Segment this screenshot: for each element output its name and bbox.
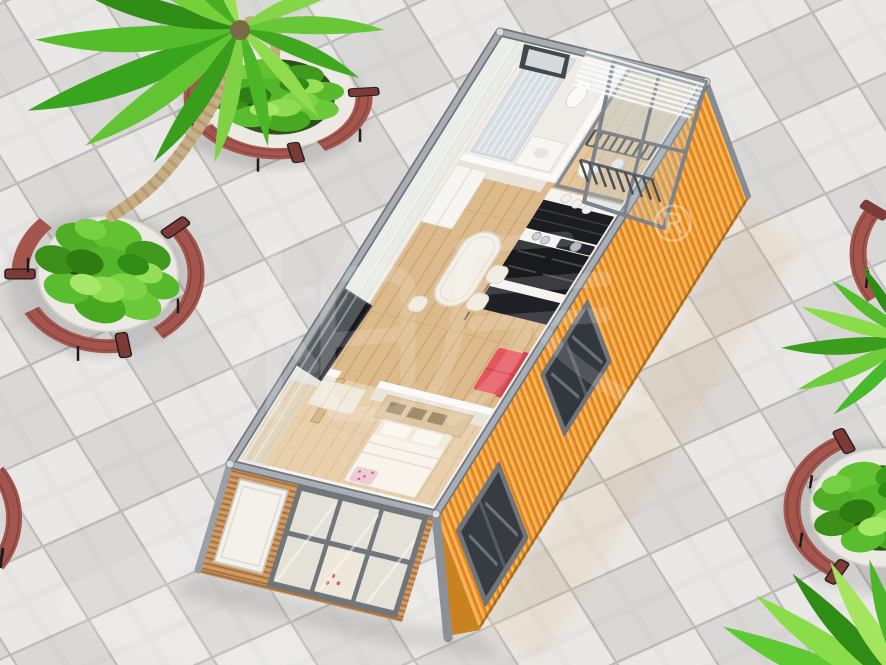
scene-render: ® bbox=[0, 0, 886, 665]
corner-cap bbox=[496, 28, 504, 36]
render-canvas: 柏辰 bbox=[0, 0, 886, 665]
corner-cap bbox=[226, 460, 234, 468]
registered-mark: ® bbox=[647, 195, 699, 255]
corner-cap bbox=[432, 510, 440, 518]
